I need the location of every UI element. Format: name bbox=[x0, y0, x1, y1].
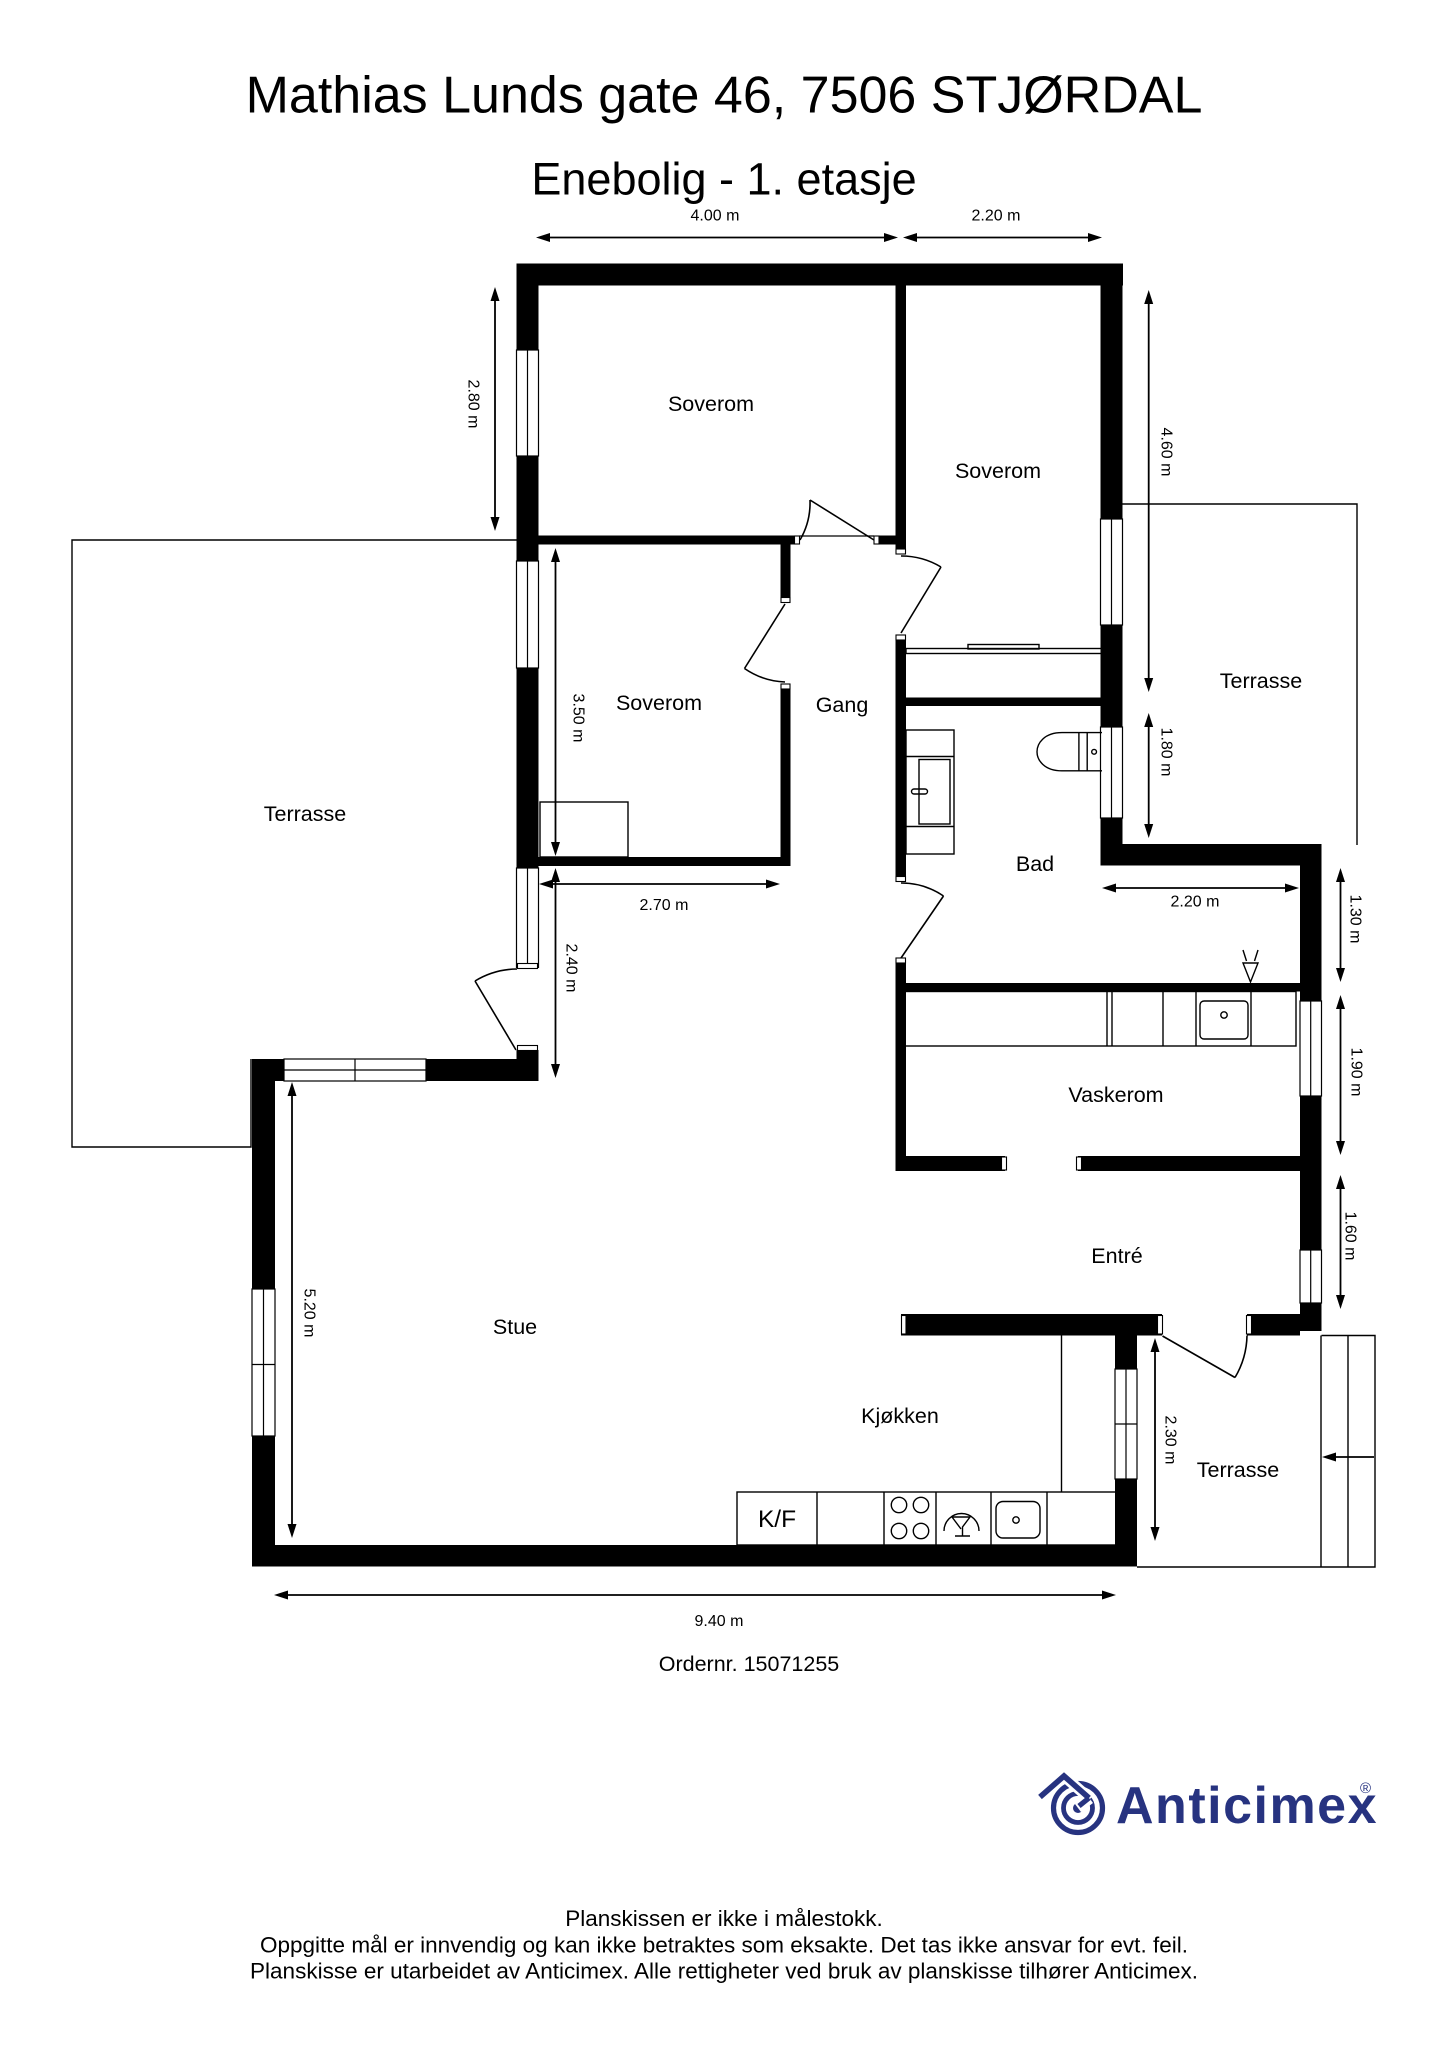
svg-text:Terrasse: Terrasse bbox=[264, 802, 346, 826]
svg-text:3.50 m: 3.50 m bbox=[570, 694, 587, 743]
svg-text:2.70 m: 2.70 m bbox=[640, 897, 689, 914]
svg-text:Entré: Entré bbox=[1091, 1244, 1142, 1268]
svg-text:Enebolig - 1. etasje: Enebolig - 1. etasje bbox=[531, 154, 916, 205]
svg-text:1.80 m: 1.80 m bbox=[1158, 728, 1175, 777]
svg-text:1.90 m: 1.90 m bbox=[1348, 1048, 1365, 1097]
svg-text:5.20 m: 5.20 m bbox=[301, 1289, 318, 1338]
svg-text:Planskisse er utarbeidet av An: Planskisse er utarbeidet av Anticimex. A… bbox=[250, 1959, 1198, 1984]
svg-text:Bad: Bad bbox=[1016, 852, 1054, 876]
svg-text:Terrasse: Terrasse bbox=[1197, 1458, 1279, 1482]
svg-text:Gang: Gang bbox=[816, 693, 869, 717]
svg-text:9.40 m: 9.40 m bbox=[695, 1613, 744, 1630]
svg-text:Planskissen er ikke i målestok: Planskissen er ikke i målestokk. bbox=[565, 1906, 883, 1931]
svg-text:2.30 m: 2.30 m bbox=[1162, 1416, 1179, 1465]
svg-text:1.60 m: 1.60 m bbox=[1342, 1212, 1359, 1261]
svg-text:4.00 m: 4.00 m bbox=[691, 208, 740, 225]
svg-text:Vaskerom: Vaskerom bbox=[1068, 1083, 1163, 1107]
svg-text:K/F: K/F bbox=[758, 1506, 796, 1533]
svg-text:Soverom: Soverom bbox=[668, 392, 754, 416]
svg-text:Terrasse: Terrasse bbox=[1220, 669, 1302, 693]
svg-text:Anticimex: Anticimex bbox=[1116, 1777, 1378, 1835]
svg-text:Soverom: Soverom bbox=[616, 691, 702, 715]
svg-text:4.60 m: 4.60 m bbox=[1158, 428, 1175, 477]
svg-text:2.80 m: 2.80 m bbox=[465, 380, 482, 429]
svg-text:1.30 m: 1.30 m bbox=[1347, 895, 1364, 944]
svg-text:Mathias Lunds gate 46, 7506 ST: Mathias Lunds gate 46, 7506 STJØRDAL bbox=[246, 67, 1203, 125]
svg-text:Kjøkken: Kjøkken bbox=[861, 1404, 939, 1428]
svg-text:®: ® bbox=[1360, 1780, 1371, 1797]
svg-text:Ordernr. 15071255: Ordernr. 15071255 bbox=[659, 1652, 840, 1676]
svg-text:Soverom: Soverom bbox=[955, 459, 1041, 483]
svg-text:2.20 m: 2.20 m bbox=[972, 208, 1021, 225]
svg-text:2.40 m: 2.40 m bbox=[563, 944, 580, 993]
svg-text:Oppgitte mål er innvendig og k: Oppgitte mål er innvendig og kan ikke be… bbox=[260, 1933, 1188, 1958]
svg-text:2.20 m: 2.20 m bbox=[1171, 894, 1220, 911]
svg-text:Stue: Stue bbox=[493, 1315, 537, 1339]
